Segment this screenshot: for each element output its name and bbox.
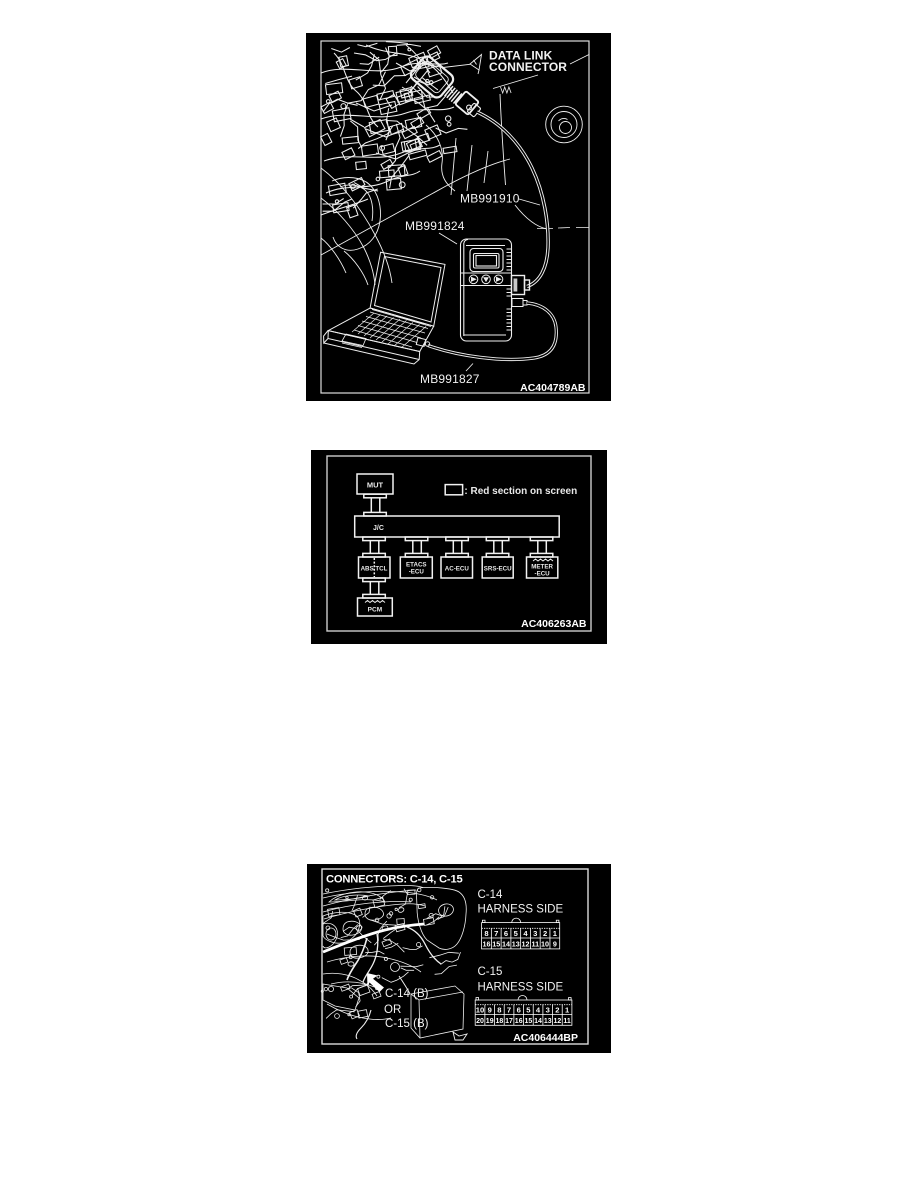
- svg-text:7: 7: [507, 1005, 511, 1014]
- svg-text:7: 7: [494, 929, 498, 938]
- svg-text:C-14 (B): C-14 (B): [385, 988, 429, 1000]
- svg-text:HARNESS SIDE: HARNESS SIDE: [478, 982, 564, 994]
- svg-text:5: 5: [526, 1005, 531, 1014]
- svg-text:2: 2: [543, 929, 547, 938]
- svg-text:13: 13: [544, 1018, 552, 1025]
- svg-text:MB991910: MB991910: [460, 192, 520, 206]
- svg-text:14: 14: [502, 939, 510, 948]
- svg-text:MB991824: MB991824: [405, 219, 465, 233]
- svg-text:18: 18: [495, 1018, 503, 1025]
- svg-text:19: 19: [486, 1018, 494, 1025]
- svg-text:5: 5: [514, 929, 519, 938]
- svg-text:16: 16: [515, 1018, 523, 1025]
- svg-text:14: 14: [534, 1018, 542, 1025]
- svg-text:3: 3: [533, 929, 537, 938]
- svg-text:15: 15: [492, 939, 500, 948]
- svg-text:PCM: PCM: [368, 607, 382, 614]
- svg-text:-ECU: -ECU: [535, 571, 551, 578]
- svg-text:OR: OR: [384, 1004, 401, 1016]
- svg-text:4: 4: [523, 929, 528, 938]
- svg-text:9: 9: [553, 939, 557, 948]
- svg-text:20: 20: [476, 1018, 484, 1025]
- svg-text:CONNECTORS: C-14, C-15: CONNECTORS: C-14, C-15: [326, 874, 463, 886]
- svg-text:15: 15: [524, 1018, 532, 1025]
- svg-text:AC-ECU: AC-ECU: [445, 566, 470, 573]
- svg-text:MB991827: MB991827: [420, 372, 480, 386]
- svg-text:16: 16: [482, 939, 490, 948]
- svg-text:AC404789AB: AC404789AB: [520, 382, 586, 394]
- svg-text:12: 12: [522, 939, 530, 948]
- svg-text:6: 6: [504, 929, 508, 938]
- svg-text:MUT: MUT: [367, 481, 384, 490]
- svg-text:C-15 (B): C-15 (B): [385, 1018, 429, 1030]
- svg-text:9: 9: [488, 1005, 492, 1014]
- svg-text:12: 12: [553, 1018, 561, 1025]
- svg-text:: Red section on screen: : Red section on screen: [464, 486, 577, 497]
- svg-text:J/C: J/C: [373, 525, 384, 532]
- svg-text:AC406263AB: AC406263AB: [521, 618, 587, 630]
- svg-text:ETACS: ETACS: [406, 562, 427, 569]
- svg-text:13: 13: [512, 939, 520, 948]
- svg-text:17: 17: [505, 1018, 513, 1025]
- svg-text:HARNESS SIDE: HARNESS SIDE: [478, 904, 564, 916]
- svg-text:C-14: C-14: [478, 889, 504, 901]
- svg-text:1: 1: [565, 1005, 570, 1014]
- svg-text:10: 10: [541, 939, 549, 948]
- svg-text:ABS TCL: ABS TCL: [361, 566, 388, 573]
- svg-text:AC406444BP: AC406444BP: [513, 1032, 578, 1044]
- svg-text:C-15: C-15: [478, 966, 503, 978]
- svg-text:SRS-ECU: SRS-ECU: [484, 566, 512, 573]
- svg-text:6: 6: [517, 1005, 521, 1014]
- svg-text:10: 10: [476, 1005, 484, 1014]
- svg-text:CONNECTOR: CONNECTOR: [489, 60, 567, 74]
- svg-text:3: 3: [546, 1005, 550, 1014]
- svg-text:8: 8: [497, 1005, 501, 1014]
- svg-text:1: 1: [553, 929, 558, 938]
- svg-text:2: 2: [555, 1005, 559, 1014]
- svg-text:11: 11: [531, 939, 539, 948]
- svg-text:METER: METER: [531, 564, 553, 571]
- svg-text:11: 11: [563, 1018, 571, 1025]
- svg-text:-ECU: -ECU: [409, 569, 425, 576]
- svg-text:8: 8: [484, 929, 488, 938]
- svg-text:4: 4: [536, 1005, 541, 1014]
